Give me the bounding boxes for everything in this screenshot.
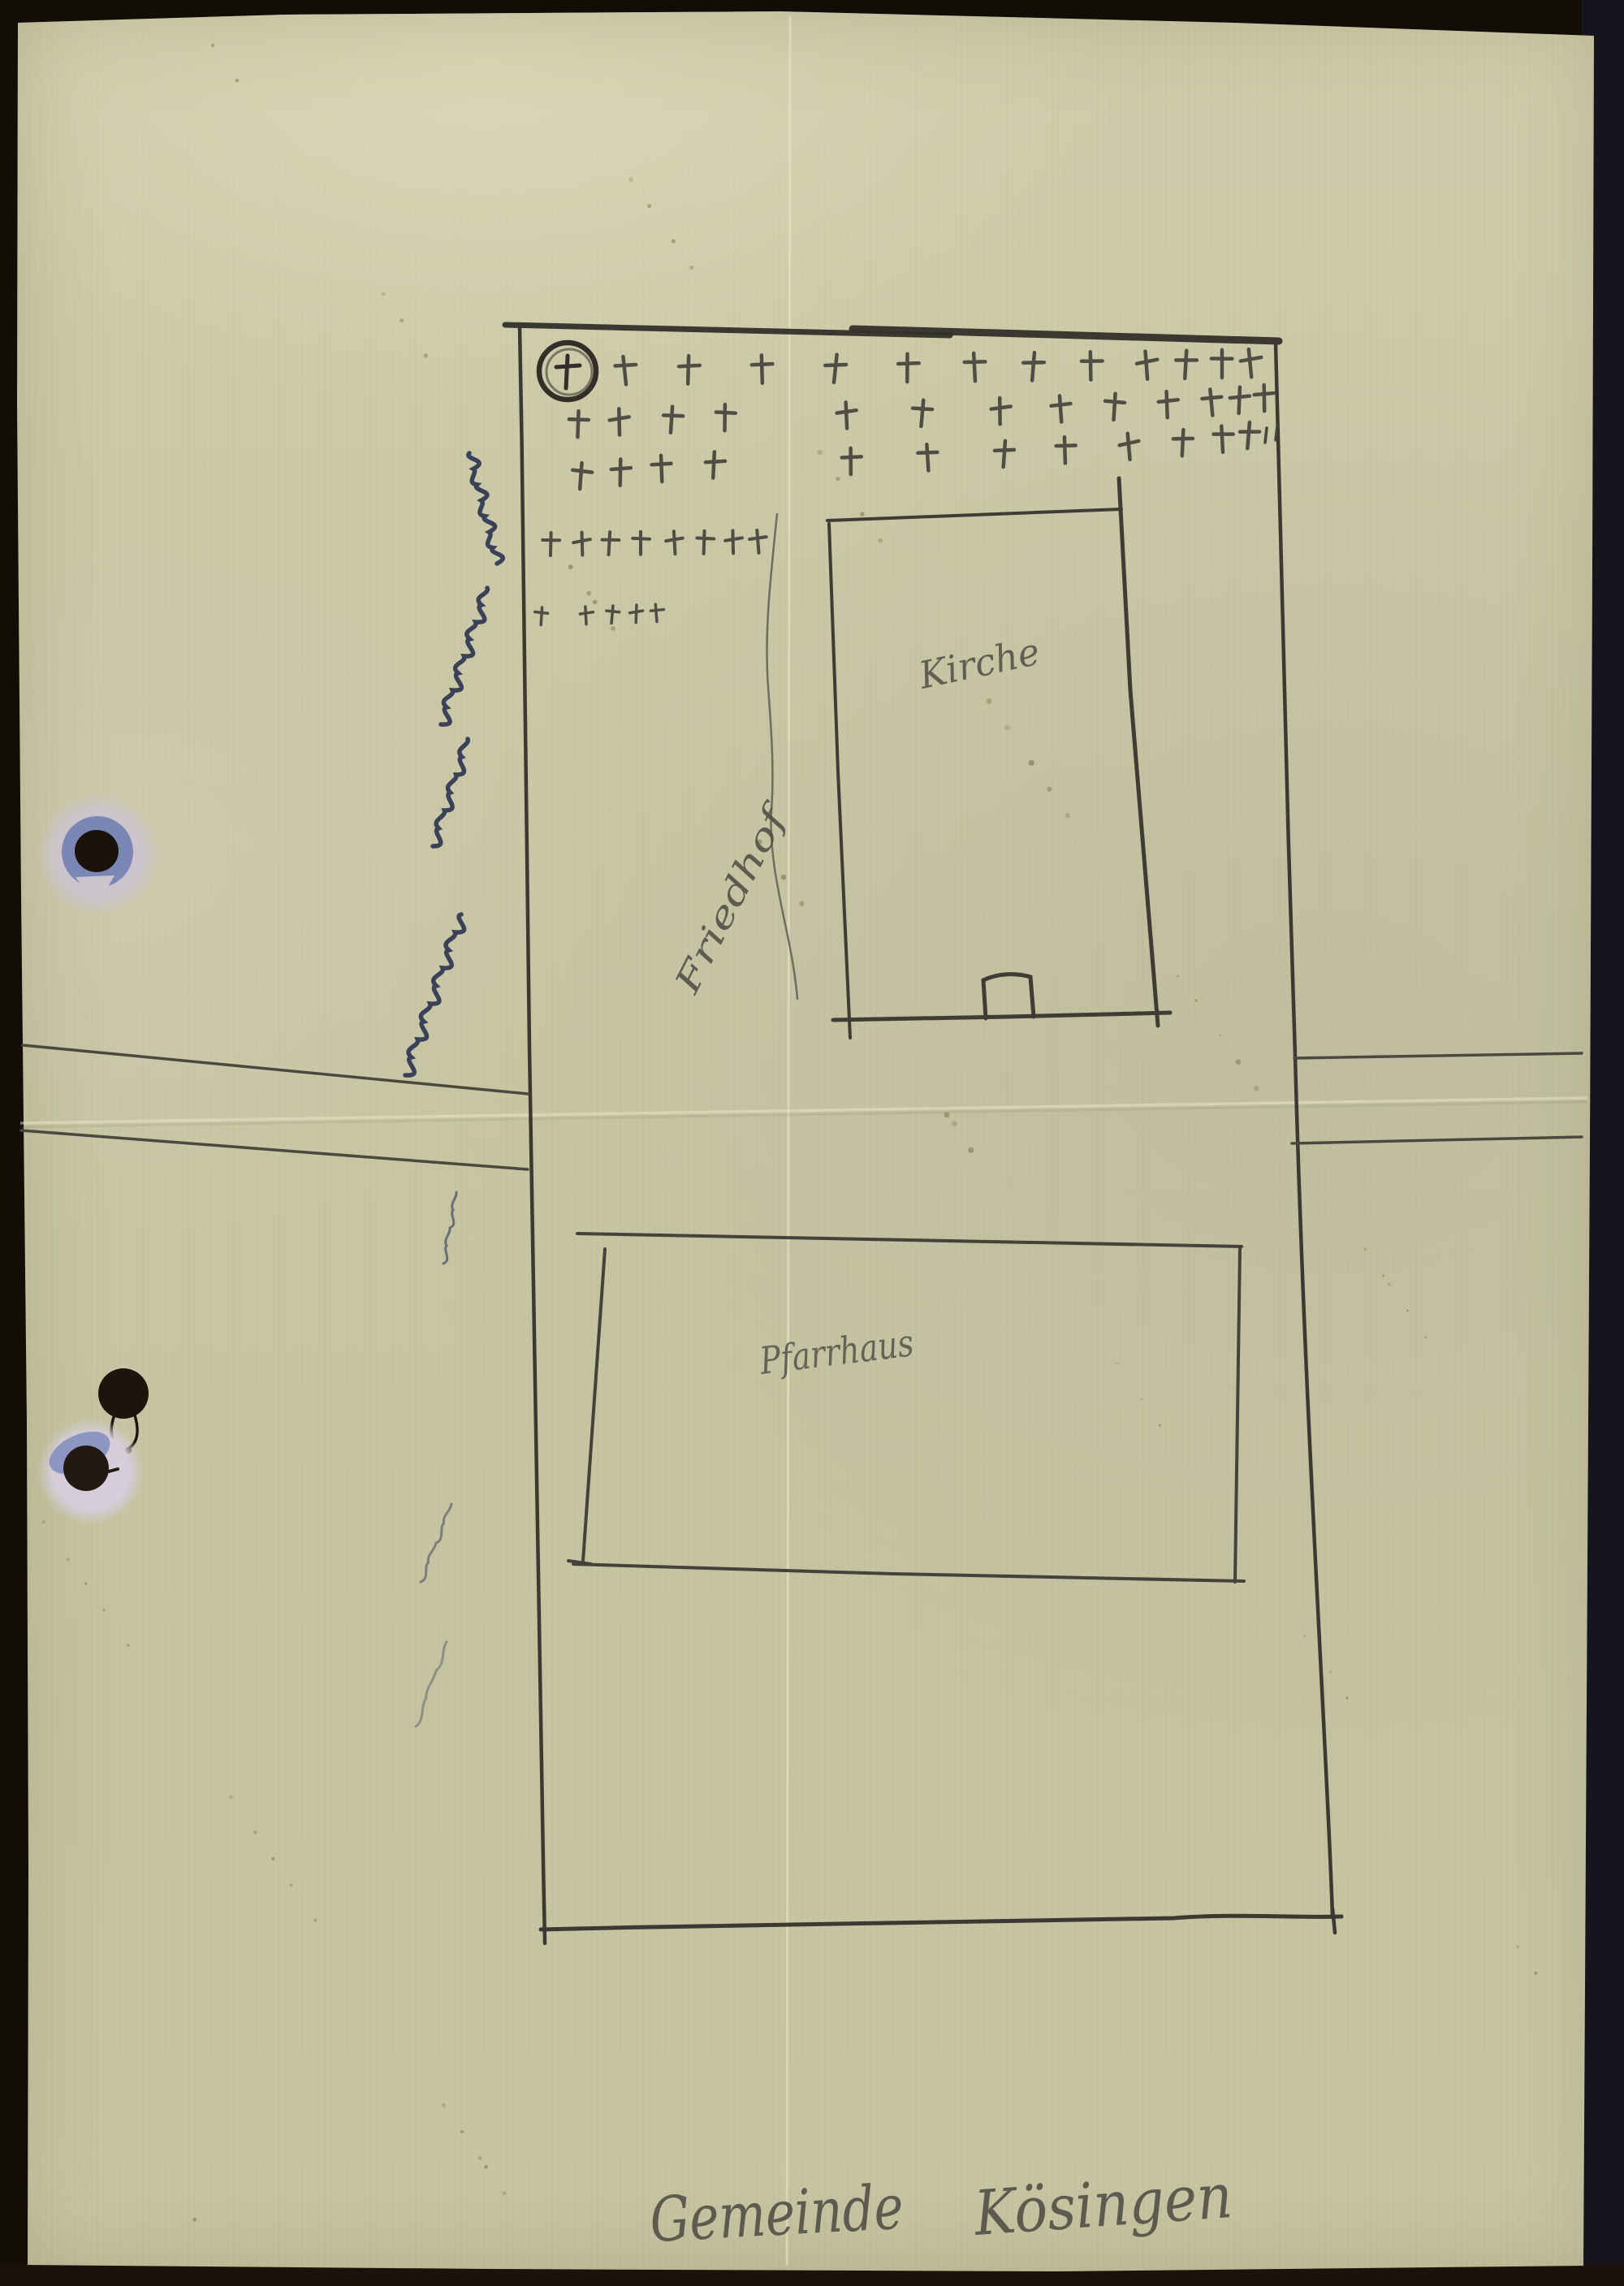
site-plan-drawing: Kirche Friedhof Pfarrhaus Gemeinde Kösin… [0,0,1624,2286]
grave-cross [571,462,593,490]
horizontal-fold-shadow [20,1102,1587,1127]
paper-speck [1406,1310,1409,1312]
paper-speck [503,2192,507,2196]
grave-cross [606,605,620,624]
paper-speck [84,1583,87,1585]
paper-speck [442,2103,446,2107]
paper-speck [952,1121,957,1126]
paper-speck [1116,1363,1119,1365]
grave-cross [836,402,857,429]
paper-speck [1363,1247,1367,1251]
pencil-smudges [416,1192,456,1726]
grave-cross [696,530,714,554]
church-label: Kirche [914,629,1043,698]
grave-cross [662,406,684,434]
paper-speck [1534,1972,1537,1975]
grave-cross [1212,350,1233,378]
grave-cross [1051,395,1072,422]
grave-cross [651,455,672,482]
grave-cross [580,607,594,624]
paper-speck [1345,1696,1348,1699]
paper-speck [102,1609,105,1611]
church-top-wall [827,509,1121,521]
street-right-lower-line [1292,1137,1582,1143]
grave-marker-tick [1276,426,1277,440]
paper-speck [66,1558,69,1561]
pencil-smudge [416,1642,447,1726]
grave-cross [725,530,742,553]
grave-cross [912,400,933,427]
vertical-fold-crease [787,16,790,2266]
paper-speck [1388,1283,1391,1286]
grave-cross [1240,348,1263,378]
grave-cross [615,356,638,386]
street-lines [21,1045,1582,1169]
grave-cross [749,529,767,554]
paper-speck [211,44,215,48]
paper-speck [229,1796,233,1800]
paper-speck [192,2218,197,2222]
paper-speck [484,2165,487,2168]
paper-speck [253,1830,257,1834]
parsonage-label: Pfarrhaus [757,1320,916,1383]
paper-speck [799,901,804,906]
grave-cross [573,532,591,555]
grave-cross [542,533,559,555]
grave-cross [994,440,1015,467]
paper-speck [1303,1635,1306,1637]
paper-speck [593,600,598,605]
street-left-lower-line [21,1130,528,1169]
grave-cross [1118,433,1140,460]
cemetery-boundary-wavy-line [767,514,797,999]
grave-cross [1056,437,1076,464]
paper-speck [235,79,239,83]
punch-hole-bottom-hole [63,1445,109,1491]
paper-speck [1065,813,1070,818]
paper-speck [647,204,651,208]
paper-speck [628,177,633,182]
grave-cross [1213,426,1233,452]
paper-speck [1177,975,1179,978]
paper-speck [781,875,786,879]
paper-speck [836,477,840,482]
paper-speck [42,1520,45,1523]
paper-speck [460,2130,464,2133]
paper-speck [400,318,404,322]
grave-cross [609,408,629,435]
paper-speck [689,266,693,270]
paper-speck [818,450,823,455]
handwritten-ink-note [405,453,503,1075]
paper-speck [944,1112,950,1117]
paper-speck [272,1857,275,1860]
paper-speck [1194,999,1197,1001]
grave-cross [568,411,589,438]
paper-speck [586,591,591,596]
grave-cross [715,404,736,431]
paper-speck [1382,1274,1384,1277]
grave-cross [823,354,847,384]
caption-gemeinde: Gemeinde [648,2171,905,2256]
plot-left-border [520,326,545,1943]
church-left-wall [829,524,850,1038]
plot-right-border [1276,344,1332,1917]
grave-cross [629,605,642,623]
ink-note-word [405,914,464,1075]
grave-cross [534,607,548,625]
punch-hole-top [37,793,160,916]
parsonage-left-wall [583,1249,605,1561]
street-left-upper-line [23,1045,528,1094]
paper-speck [1141,1398,1143,1400]
paper-speck [1219,1035,1221,1037]
grave-cross [705,452,726,479]
paper-speck [987,698,992,704]
parsonage-top-wall [577,1234,1242,1247]
grave-cross [842,448,862,474]
punch-hole-bottom [37,1418,145,1525]
grave-cross [611,459,631,486]
plot-right-border-tail [1332,1908,1335,1933]
grave-cross [1136,351,1159,380]
paper-speck [568,564,573,569]
grave-cross [650,604,664,622]
grave-cross [601,531,620,555]
paper-speck [672,240,676,244]
grave-cross [1201,388,1223,416]
grave-cross [1254,385,1274,412]
grave-cross [678,356,700,384]
church-outline [827,478,1170,1038]
pencil-smudge [421,1504,451,1582]
grave-cross [1104,393,1125,420]
horizontal-fold-crease [20,1098,1587,1123]
ink-note-word [469,453,503,564]
grave-cross [1158,391,1178,418]
parsonage-right-wall [1235,1248,1240,1582]
parsonage-bottom-wall [573,1564,1244,1581]
plot-boundary [505,325,1341,1943]
circled-cross-cross [556,356,580,388]
grave-cross [1082,352,1103,379]
paper-speck [290,1883,293,1886]
grave-cross [991,398,1011,424]
paper-speck [1047,787,1052,792]
parsonage-outline [568,1234,1244,1582]
pencil-smudge [443,1192,456,1264]
church-door-porch [983,974,1034,1018]
paper-speck [1254,1086,1259,1091]
ink-blot-body [98,1368,149,1419]
punch-hole-top-hole [75,830,119,872]
paper-speck [968,1147,974,1153]
paper-speck [314,1919,317,1922]
grave-marker-tick [1265,428,1267,443]
grave-cross [751,355,773,383]
caption-koesingen: Kösingen [970,2159,1234,2249]
paper-speck [878,538,883,543]
paper-speck [1004,724,1010,730]
church-right-wall [1119,478,1158,1026]
paper-speck [478,2156,482,2159]
paper-speck [1159,1424,1161,1427]
scanned-document-page: { "scan": { "background_color": "#130d08… [0,0,1624,2286]
grave-cross [633,532,650,555]
paper-speck [127,1644,129,1646]
paper-speck [1029,760,1034,766]
street-right-upper-line [1294,1053,1582,1058]
paper-speck [1329,1670,1332,1673]
paper-speck [382,292,386,296]
cemetery-cross-rows [534,348,1277,625]
paper-speck [1236,1059,1242,1065]
paper-speck [1424,1336,1427,1338]
ink-note-word [441,588,487,724]
grave-cross [964,352,986,382]
grave-cross [665,531,684,555]
grave-cross [1229,387,1250,413]
plot-bottom-border [541,1916,1341,1929]
cemetery-label: Friedhof [667,796,797,1000]
grave-cross [898,354,919,382]
paper-speck [860,512,865,516]
ink-note-word [433,739,468,846]
circled-cross-symbol [539,343,596,400]
grave-cross [918,443,939,471]
grave-cross [1238,421,1260,449]
grave-cross [1173,430,1193,456]
paper-speck [424,353,428,357]
grave-cross [1022,352,1045,381]
paper-speck [1516,1945,1519,1948]
paper-speck [611,626,615,631]
church-bottom-wall [833,1013,1170,1020]
grave-cross [1175,350,1197,379]
